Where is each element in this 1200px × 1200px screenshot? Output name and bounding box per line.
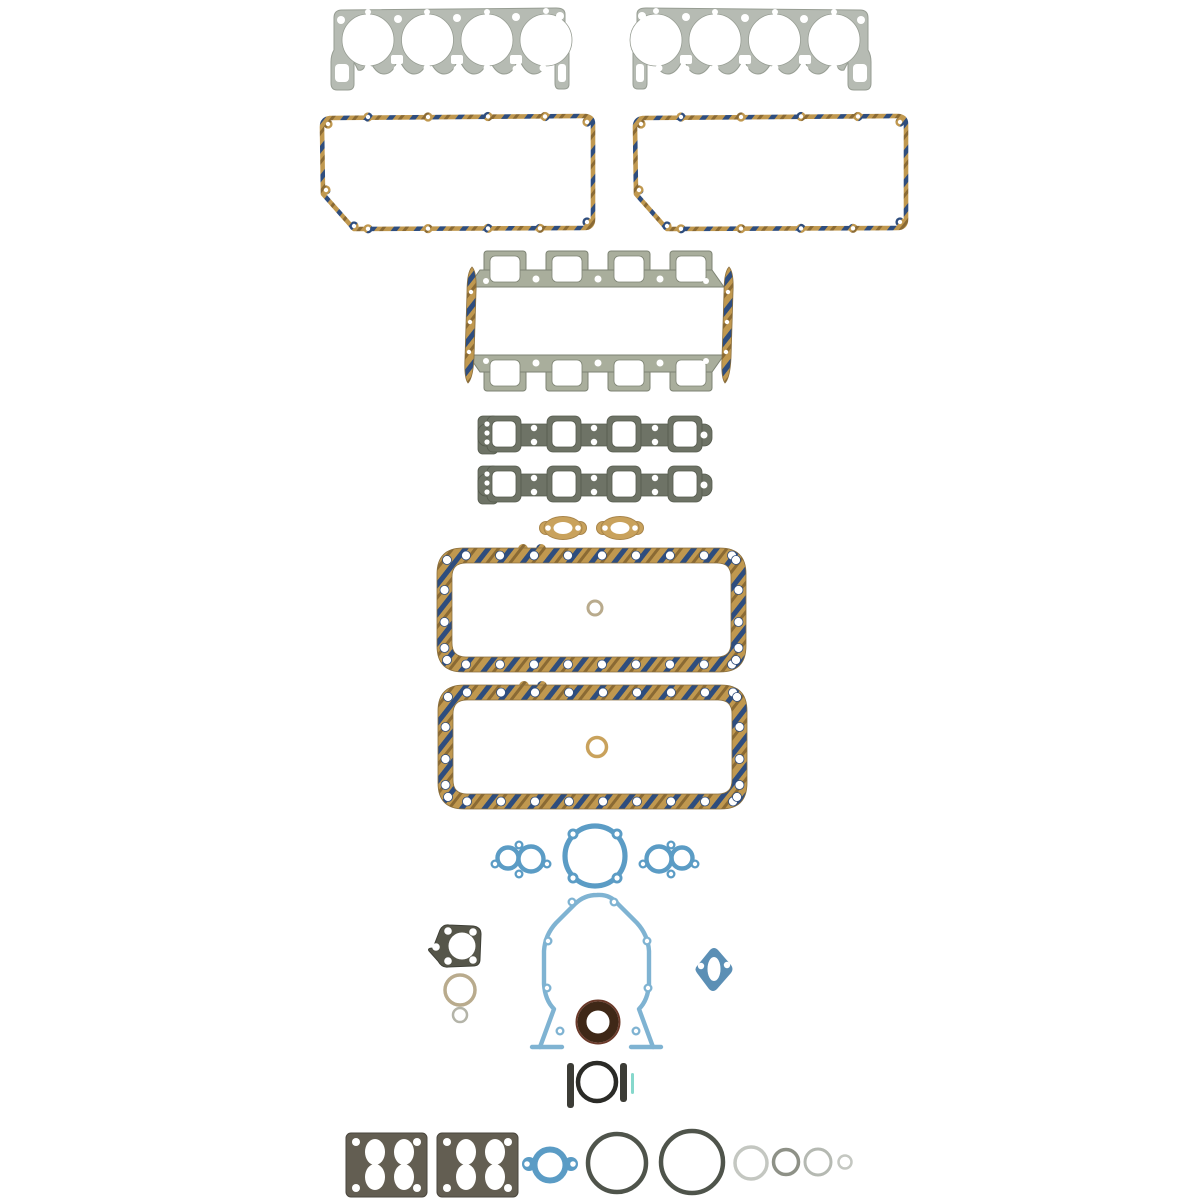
intake-flange-gasket-top-part bbox=[703, 278, 709, 284]
water-pump-port-gasket-left-part bbox=[519, 847, 544, 872]
exhaust-manifold-gasket-1-part bbox=[673, 421, 697, 447]
fuel-pump-gasket-part bbox=[724, 962, 730, 968]
exhaust-manifold-gasket-2-part bbox=[612, 471, 636, 497]
valve-cover-bolt-holes-part bbox=[639, 122, 643, 126]
head-gasket-right-part bbox=[741, 14, 749, 22]
carburetor-base-gasket-1-part bbox=[413, 1138, 421, 1146]
water-outlet-gasket-2-part bbox=[632, 525, 638, 531]
exhaust-manifold-gasket-2-part bbox=[701, 482, 708, 489]
oil-pan-bolt-holes-part bbox=[462, 551, 471, 560]
water-pump-backing-plate-gasket bbox=[565, 826, 625, 886]
water-outlet-gasket-2-part bbox=[611, 522, 630, 534]
fuel-pump-gasket-part bbox=[708, 957, 721, 981]
head-gasket-left-part bbox=[454, 66, 461, 73]
exhaust-manifold-gasket-2-part bbox=[591, 489, 597, 495]
intake-end-seal-left-part bbox=[468, 320, 472, 324]
water-pump-port-gasket-left-part bbox=[498, 848, 519, 869]
water-pump-backing-plate-gasket-part bbox=[570, 875, 575, 880]
valve-cover-bolt-holes-part bbox=[324, 188, 328, 192]
oil-pan-bolt-holes-part bbox=[565, 797, 574, 806]
valve-cover-bolt-holes-part bbox=[679, 227, 683, 231]
thermostat-housing-gasket-part bbox=[524, 1161, 530, 1167]
carburetor-base-gasket-2-part bbox=[485, 1164, 505, 1190]
head-gasket-left-part bbox=[510, 55, 522, 64]
thermostat-plate-gasket-part bbox=[444, 927, 452, 935]
head-gasket-left-part bbox=[391, 55, 403, 64]
carburetor-base-gasket-1-part bbox=[352, 1138, 360, 1146]
intake-flange-gasket-bottom-part bbox=[490, 360, 520, 386]
water-pump-port-gasket-right bbox=[639, 841, 700, 879]
head-gasket-left-part bbox=[337, 16, 345, 24]
oil-pan-bolt-holes-part bbox=[733, 693, 742, 702]
product-photo-canvas bbox=[0, 0, 1200, 1200]
head-gasket-right-part bbox=[772, 9, 778, 15]
carburetor-base-gasket-1 bbox=[346, 1133, 427, 1197]
intake-flange-gasket-top-part bbox=[595, 276, 602, 283]
oil-pan-bolt-holes-part bbox=[700, 551, 709, 560]
oil-pan-bolt-holes-part bbox=[701, 688, 710, 697]
intake-flange-gasket-bottom-part bbox=[614, 360, 644, 386]
exhaust-manifold-gasket-1-part bbox=[484, 421, 489, 426]
head-gasket-right-part bbox=[682, 13, 690, 21]
water-pump-backing-plate-gasket-part bbox=[614, 831, 619, 836]
head-gasket-right-part bbox=[742, 66, 749, 73]
water-pump-port-gasket-right-part bbox=[641, 862, 645, 866]
intake-flange-gasket-top bbox=[468, 251, 724, 287]
oil-pan-bolt-holes-part bbox=[530, 551, 539, 560]
exhaust-manifold-gasket-1-part bbox=[484, 439, 489, 444]
oil-pan-bolt-holes-part bbox=[598, 551, 607, 560]
intake-end-seal-left-part bbox=[469, 290, 473, 294]
water-outlet-gasket-1-part bbox=[545, 525, 551, 531]
head-gasket-right-part bbox=[857, 16, 865, 24]
water-pump-port-gasket-right-part bbox=[693, 862, 697, 866]
water-pump-port-gasket-left-part bbox=[517, 872, 521, 876]
small-sealing-ring-1 bbox=[445, 975, 475, 1005]
exhaust-manifold-gasket-2-part bbox=[484, 489, 489, 494]
thermostat-plate-gasket-part bbox=[469, 956, 477, 964]
oil-pan-bolt-holes-part bbox=[735, 723, 744, 732]
head-gasket-right-part bbox=[636, 64, 644, 82]
valve-cover-gasket-left-part bbox=[322, 116, 593, 229]
exhaust-manifold-gasket-2-part bbox=[673, 471, 697, 497]
valve-cover-bolt-holes-part bbox=[898, 220, 902, 224]
head-gasket-left-part bbox=[451, 55, 463, 64]
intake-flange-gasket-top-part bbox=[490, 256, 520, 282]
exhaust-manifold-gasket-2-part bbox=[484, 480, 489, 485]
valve-cover-bolt-holes-part bbox=[665, 224, 669, 228]
rear-main-seal-set-part bbox=[578, 1063, 616, 1101]
valve-cover-bolt-holes bbox=[321, 112, 591, 233]
exhaust-manifold-gasket-1-part bbox=[492, 421, 516, 447]
head-gasket-right-part bbox=[739, 55, 751, 64]
head-gasket-right-part bbox=[653, 8, 659, 14]
rear-main-seal-set-part bbox=[631, 1073, 634, 1094]
rear-main-seal-set bbox=[567, 1063, 634, 1108]
oil-pan-bolt-holes-part bbox=[667, 797, 676, 806]
water-outlet-gasket-2-part bbox=[602, 525, 608, 531]
water-outlet-gasket-1-part bbox=[575, 525, 581, 531]
timing-cover-gasket-part bbox=[645, 939, 649, 943]
valve-cover-bolt-holes-part bbox=[739, 115, 743, 119]
oil-pan-center-o-ring-2 bbox=[588, 738, 607, 757]
o-ring-assortment-part bbox=[661, 1131, 723, 1193]
exhaust-manifold-gasket-1-part bbox=[652, 439, 658, 445]
oil-pan-bolt-holes-part bbox=[440, 644, 449, 653]
oil-pan-bolt-holes-part bbox=[632, 551, 641, 560]
exhaust-manifold-gasket-2-part bbox=[492, 471, 516, 497]
valve-cover-bolt-holes-part bbox=[585, 220, 589, 224]
o-ring-assortment bbox=[588, 1131, 852, 1193]
oil-pan-bolt-holes-part bbox=[440, 586, 449, 595]
water-pump-port-gasket-right-part bbox=[669, 843, 673, 847]
intake-end-seal-right-part bbox=[726, 290, 730, 294]
valve-cover-bolt-holes-part bbox=[898, 120, 902, 124]
timing-cover-gasket-part bbox=[546, 939, 550, 943]
head-gasket-left bbox=[331, 8, 572, 90]
exhaust-manifold-gasket-1-part bbox=[552, 421, 576, 447]
intake-end-seal-right bbox=[722, 267, 733, 383]
intake-flange-gasket-top-part bbox=[533, 276, 540, 283]
water-pump-port-gasket-right-part bbox=[647, 847, 672, 872]
oil-pan-gasket-2 bbox=[438, 681, 747, 809]
oil-pan-bolt-holes-part bbox=[667, 688, 676, 697]
exhaust-manifold-gasket-1-part bbox=[591, 439, 597, 445]
valve-cover-bolt-holes-part bbox=[739, 226, 743, 230]
valve-cover-bolt-holes-part bbox=[366, 115, 370, 119]
carburetor-base-gasket-2-part bbox=[456, 1164, 476, 1190]
crankshaft-front-seal-part bbox=[582, 1006, 614, 1038]
carburetor-base-gasket-1-part bbox=[365, 1139, 385, 1165]
intake-end-seal-left bbox=[465, 267, 476, 383]
oil-pan-bolt-holes-part bbox=[463, 688, 472, 697]
oil-pan-bolt-holes-part bbox=[440, 618, 449, 627]
carburetor-base-gasket-2-part bbox=[485, 1139, 505, 1165]
exhaust-manifold-gasket-1-part bbox=[612, 421, 636, 447]
valve-cover-gasket-left bbox=[321, 112, 593, 233]
valve-cover-bolt-holes-part bbox=[326, 122, 330, 126]
head-gasket-left-part bbox=[335, 64, 349, 82]
oil-pan-bolt-holes-part bbox=[444, 793, 453, 802]
oil-pan-bolt-holes-part bbox=[496, 551, 505, 560]
head-gasket-left-part bbox=[512, 13, 520, 21]
exhaust-manifold-gasket-2-part bbox=[591, 475, 597, 481]
rear-main-seal-set-part bbox=[567, 1063, 574, 1108]
head-gasket-left-part bbox=[353, 53, 359, 59]
exhaust-manifold-gasket-2-part bbox=[552, 471, 576, 497]
water-pump-backing-plate-gasket-part bbox=[614, 875, 619, 880]
head-gasket-left-part bbox=[556, 12, 564, 20]
oil-pan-bolt-holes-part bbox=[443, 656, 452, 665]
valve-cover-bolt-holes-part bbox=[426, 115, 430, 119]
head-gasket-right-part bbox=[712, 9, 718, 15]
carburetor-base-gasket-2-part bbox=[443, 1184, 451, 1192]
intake-flange-gasket-bottom bbox=[468, 355, 724, 391]
head-gasket-right bbox=[630, 8, 871, 90]
head-gasket-left-part bbox=[394, 15, 402, 23]
oil-pan-bolt-holes-part bbox=[732, 656, 741, 665]
o-ring-assortment-part bbox=[839, 1156, 852, 1169]
intake-flange-gasket-bottom-part bbox=[595, 360, 602, 367]
timing-cover-gasket-part bbox=[558, 1029, 562, 1033]
gasket-set-photo bbox=[0, 0, 1200, 1200]
intake-flange-gasket-bottom-part bbox=[552, 360, 582, 386]
oil-pan-bolt-holes-part bbox=[463, 797, 472, 806]
intake-flange-gasket-top-part bbox=[676, 256, 706, 282]
valve-cover-bolt-holes-part bbox=[426, 226, 430, 230]
exhaust-manifold-gasket-2 bbox=[478, 466, 712, 504]
oil-pan-bolt-holes-part bbox=[700, 660, 709, 669]
water-pump-port-gasket-right-part bbox=[672, 848, 693, 869]
water-outlet-gasket-1 bbox=[540, 517, 587, 540]
carburetor-base-gasket-2-part bbox=[456, 1139, 476, 1165]
intake-end-seal-left-part bbox=[465, 267, 476, 383]
intake-flange-gasket-bottom-part bbox=[657, 360, 664, 367]
valve-cover-bolt-holes-part bbox=[366, 227, 370, 231]
thermostat-housing-gasket-part bbox=[570, 1161, 576, 1167]
oil-pan-bolt-holes-part bbox=[701, 797, 710, 806]
valve-cover-bolt-holes-part bbox=[799, 226, 803, 230]
oil-pan-bolt-holes-part bbox=[564, 660, 573, 669]
carburetor-base-gasket-2-part bbox=[504, 1138, 512, 1146]
oil-pan-gasket-1-part bbox=[437, 548, 746, 672]
water-pump-port-gasket-left-part bbox=[517, 843, 521, 847]
oil-pan-bolt-holes bbox=[440, 551, 743, 669]
water-pump-port-gasket-right-part bbox=[669, 872, 673, 876]
intake-flange-gasket-bottom-part bbox=[676, 360, 706, 386]
head-gasket-left-part bbox=[558, 64, 566, 82]
oil-pan-bolt-holes-part bbox=[564, 551, 573, 560]
head-gasket-right-part bbox=[843, 53, 849, 59]
exhaust-manifold-gasket-1-part bbox=[531, 439, 537, 445]
head-gasket-right-part bbox=[808, 14, 860, 66]
o-ring-assortment-part bbox=[805, 1149, 831, 1175]
exhaust-manifold-gasket-1-part bbox=[591, 425, 597, 431]
thermostat-plate-gasket-part bbox=[469, 928, 477, 936]
head-gasket-right-part bbox=[853, 64, 867, 82]
head-gasket-right-part bbox=[630, 14, 682, 66]
oil-pan-bolt-holes-part bbox=[441, 781, 450, 790]
timing-cover-gasket bbox=[532, 895, 661, 1047]
thermostat-plate-gasket-part bbox=[449, 933, 476, 960]
water-outlet-gasket-2 bbox=[597, 517, 644, 540]
intake-flange-gasket-bottom-part bbox=[533, 360, 540, 367]
timing-cover-gasket-part bbox=[646, 986, 650, 990]
head-gasket-right-part bbox=[689, 14, 741, 66]
intake-end-seal-right-part bbox=[724, 350, 728, 354]
valve-cover-bolt-holes-part bbox=[637, 188, 641, 192]
carburetor-base-gasket-1-part bbox=[365, 1164, 385, 1190]
valve-cover-gasket-right bbox=[634, 112, 906, 233]
head-gasket-right-part bbox=[638, 12, 646, 20]
intake-flange-gasket-top-part bbox=[552, 256, 582, 282]
intake-flange-gasket-top-part bbox=[657, 276, 664, 283]
oil-pan-bolt-holes-part bbox=[531, 797, 540, 806]
oil-pan-bolt-holes-part bbox=[598, 660, 607, 669]
oil-pan-bolt-holes-part bbox=[734, 586, 743, 595]
intake-flange-gasket-top-part bbox=[614, 256, 644, 282]
valve-cover-bolt-holes-part bbox=[486, 226, 490, 230]
head-gasket-left-part bbox=[424, 9, 430, 15]
valve-cover-bolt-holes-part bbox=[585, 120, 589, 124]
oil-pan-bolt-holes-part bbox=[734, 618, 743, 627]
head-gasket-right-part bbox=[680, 55, 692, 64]
water-pump-port-gasket-left-part bbox=[545, 862, 549, 866]
oil-pan-bolt-holes-part bbox=[441, 723, 450, 732]
head-gasket-right-part bbox=[799, 55, 811, 64]
exhaust-manifold-gasket-1-part bbox=[484, 430, 489, 435]
head-gasket-left-part bbox=[540, 65, 547, 72]
head-gasket-right-part bbox=[800, 15, 808, 23]
exhaust-manifold-gasket-2-part bbox=[531, 475, 537, 481]
head-gasket-right-part bbox=[831, 9, 837, 15]
oil-pan-gasket-2-part bbox=[438, 685, 747, 809]
carburetor-base-gasket-1-part bbox=[413, 1184, 421, 1192]
oil-pan-bolt-holes-part bbox=[599, 688, 608, 697]
water-outlet-gasket-1-part bbox=[554, 522, 573, 534]
oil-pan-bolt-holes-part bbox=[497, 688, 506, 697]
valve-cover-bolt-holes-part bbox=[538, 226, 542, 230]
carburetor-base-gasket-2 bbox=[437, 1133, 518, 1197]
valve-cover-bolt-holes-part bbox=[679, 115, 683, 119]
head-gasket-left-part bbox=[342, 14, 394, 66]
rear-main-seal-set-part bbox=[620, 1063, 627, 1102]
oil-pan-bolt-holes-part bbox=[462, 660, 471, 669]
intake-end-seal-left-part bbox=[467, 350, 471, 354]
thermostat-plate-gasket-part bbox=[444, 957, 452, 965]
exhaust-manifold-gasket-1 bbox=[478, 416, 712, 454]
head-gasket-left-part bbox=[394, 66, 401, 73]
oil-pan-bolt-holes-part bbox=[733, 793, 742, 802]
head-gasket-left-part bbox=[461, 14, 513, 66]
head-gasket-right-part bbox=[749, 14, 801, 66]
head-gasket-left-part bbox=[484, 65, 491, 72]
water-pump-backing-plate-gasket-part bbox=[570, 831, 575, 836]
head-gasket-left-part bbox=[424, 65, 431, 72]
head-gasket-right-part bbox=[656, 65, 663, 72]
exhaust-manifold-gasket-1-part bbox=[652, 425, 658, 431]
oil-pan-bolt-holes-part bbox=[496, 660, 505, 669]
head-gasket-left-part bbox=[453, 14, 461, 22]
oil-pan-bolt-holes-part bbox=[633, 688, 642, 697]
valve-cover-bolt-holes bbox=[634, 112, 904, 233]
head-gasket-left-part bbox=[365, 65, 372, 72]
head-gasket-left-part bbox=[365, 9, 371, 15]
valve-cover-bolt-holes-part bbox=[352, 224, 356, 228]
valve-cover-bolt-holes-part bbox=[799, 114, 803, 118]
intake-flange-gasket-bottom-part bbox=[703, 358, 709, 364]
crankshaft-front-seal bbox=[577, 1001, 620, 1044]
carburetor-base-gasket-1-part bbox=[394, 1139, 414, 1165]
head-gasket-left-part bbox=[520, 14, 572, 66]
water-pump-port-gasket-left-part bbox=[493, 862, 497, 866]
carburetor-base-gasket-1-part bbox=[352, 1184, 360, 1192]
oil-pan-bolt-holes-part bbox=[666, 660, 675, 669]
timing-cover-gasket-part bbox=[545, 986, 549, 990]
oil-pan-bolt-holes-part bbox=[444, 693, 453, 702]
oil-pan-bolt-holes-part bbox=[633, 797, 642, 806]
carburetor-base-gasket-2-part bbox=[504, 1184, 512, 1192]
oil-pan-bolt-holes-part bbox=[632, 660, 641, 669]
head-gasket-left-part bbox=[513, 66, 520, 73]
oil-pan-bolt-holes-part bbox=[531, 688, 540, 697]
timing-cover-gasket-part bbox=[570, 900, 574, 904]
o-ring-assortment-part bbox=[735, 1147, 767, 1179]
small-sealing-ring-2 bbox=[453, 1008, 467, 1022]
head-gasket-left-part bbox=[402, 14, 454, 66]
exhaust-manifold-gasket-1-part bbox=[531, 425, 537, 431]
oil-pan-gasket-1 bbox=[437, 544, 746, 672]
thermostat-plate-gasket bbox=[429, 925, 482, 967]
water-pump-port-gasket-left bbox=[491, 841, 552, 879]
thermostat-housing-gasket-part bbox=[535, 1150, 566, 1181]
intake-end-seal-right-part bbox=[722, 267, 733, 383]
thermostat-housing-gasket bbox=[522, 1150, 578, 1181]
oil-pan-bolt-holes-part bbox=[666, 551, 675, 560]
oil-pan-bolt-holes-part bbox=[530, 660, 539, 669]
carburetor-base-gasket-2-part bbox=[443, 1138, 451, 1146]
valve-cover-bolt-holes-part bbox=[851, 226, 855, 230]
timing-cover-gasket-part bbox=[612, 900, 616, 904]
timing-cover-gasket-part bbox=[540, 895, 653, 1047]
valve-cover-gasket-right-part bbox=[635, 116, 906, 229]
valve-cover-bolt-holes-part bbox=[486, 114, 490, 118]
exhaust-manifold-gasket-2-part bbox=[652, 475, 658, 481]
oil-pan-bolt-holes-part bbox=[443, 556, 452, 565]
exhaust-manifold-gasket-1-part bbox=[701, 432, 708, 439]
head-gasket-right-part bbox=[712, 65, 719, 72]
exhaust-manifold-gasket-2-part bbox=[652, 489, 658, 495]
head-gasket-right-part bbox=[772, 65, 779, 72]
valve-cover-bolt-holes-part bbox=[856, 114, 860, 118]
oil-pan-bolt-holes-part bbox=[599, 797, 608, 806]
fuel-pump-gasket bbox=[696, 948, 733, 991]
oil-pan-bolt-holes-part bbox=[732, 556, 741, 565]
exhaust-manifold-gasket-2-part bbox=[531, 489, 537, 495]
exhaust-manifold-gasket-2-part bbox=[484, 471, 489, 476]
valve-cover-bolt-holes-part bbox=[543, 114, 547, 118]
oil-pan-center-o-ring-1 bbox=[588, 601, 602, 615]
oil-pan-bolt-holes-part bbox=[735, 755, 744, 764]
oil-pan-bolt-holes-part bbox=[497, 797, 506, 806]
thermostat-plate-gasket-part bbox=[432, 943, 440, 951]
oil-pan-bolt-holes-part bbox=[735, 781, 744, 790]
head-gasket-left-part bbox=[484, 9, 490, 15]
timing-cover-gasket-part bbox=[634, 1029, 638, 1033]
intake-flange-gasket-top-part bbox=[483, 278, 489, 284]
o-ring-assortment-part bbox=[588, 1134, 646, 1192]
head-gasket-left-part bbox=[543, 8, 549, 14]
oil-pan-bolt-holes-part bbox=[565, 688, 574, 697]
head-gasket-right-part bbox=[683, 66, 690, 73]
fuel-pump-gasket-part bbox=[698, 963, 704, 969]
head-gasket-right-part bbox=[802, 66, 809, 73]
carburetor-base-gasket-1-part bbox=[394, 1164, 414, 1190]
oil-pan-bolt-holes bbox=[441, 688, 744, 806]
intake-end-seal-right-part bbox=[725, 320, 729, 324]
oil-pan-bolt-holes-part bbox=[734, 644, 743, 653]
head-gasket-right-part bbox=[831, 65, 838, 72]
oil-pan-bolt-holes-part bbox=[441, 755, 450, 764]
intake-flange-gasket-bottom-part bbox=[483, 358, 489, 364]
o-ring-assortment-part bbox=[774, 1150, 799, 1175]
